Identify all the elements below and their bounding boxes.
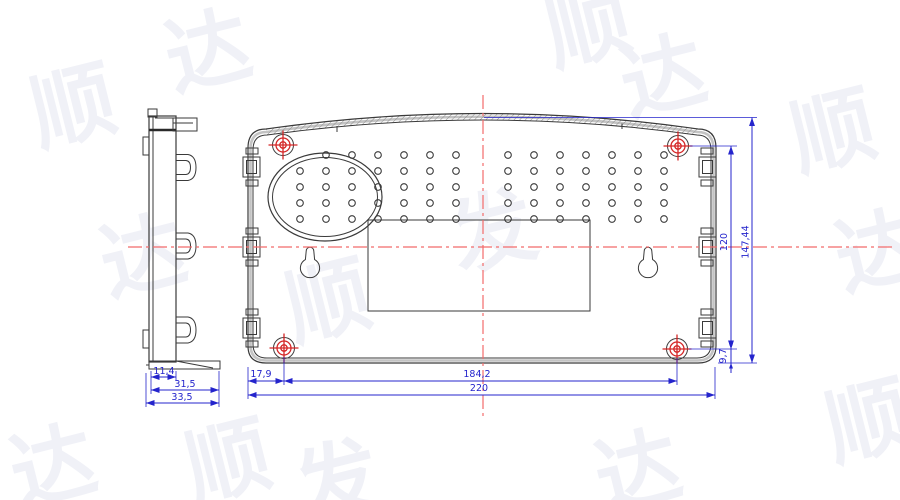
- vent-hole: [661, 216, 668, 223]
- screw-target-top-right: [664, 132, 693, 161]
- dim-total-height-label: 147,44: [741, 225, 752, 258]
- vent-hole: [401, 200, 408, 207]
- svg-text:顺: 顺: [175, 404, 280, 500]
- vent-hole: [453, 216, 460, 223]
- vent-hole: [349, 216, 356, 223]
- vent-hole: [635, 184, 642, 191]
- vent-hole: [583, 168, 590, 175]
- vent-hole: [427, 152, 434, 159]
- vent-hole: [297, 168, 304, 175]
- vent-hole: [427, 200, 434, 207]
- svg-text:顺: 顺: [275, 244, 380, 359]
- dim-total-depth-label: 33,5: [171, 392, 192, 403]
- vent-hole: [661, 200, 668, 207]
- vent-hole: [505, 168, 512, 175]
- vent-hole: [297, 184, 304, 191]
- side-tab-bottom: [143, 330, 149, 348]
- vent-hole: [375, 200, 382, 207]
- dim-total-width-label: 220: [470, 383, 488, 394]
- vent-hole: [323, 200, 330, 207]
- vent-hole: [297, 216, 304, 223]
- vent-hole: [505, 152, 512, 159]
- vent-hole: [323, 216, 330, 223]
- vent-hole: [349, 168, 356, 175]
- svg-text:顺: 顺: [20, 49, 125, 164]
- svg-text:发: 发: [440, 174, 545, 289]
- vent-hole: [401, 168, 408, 175]
- vent-hole: [661, 168, 668, 175]
- svg-text:达: 达: [90, 199, 195, 314]
- vent-hole: [557, 184, 564, 191]
- vent-hole: [505, 216, 512, 223]
- dim-flange-depth-label: 11,4: [153, 366, 174, 377]
- svg-text:达: 达: [585, 414, 690, 500]
- side-hook-top: [176, 155, 196, 181]
- vent-hole: [635, 168, 642, 175]
- vent-hole: [557, 200, 564, 207]
- vent-hole: [505, 200, 512, 207]
- vent-hole: [375, 152, 382, 159]
- svg-text:达: 达: [0, 409, 105, 500]
- vent-hole: [583, 200, 590, 207]
- vent-hole: [349, 184, 356, 191]
- watermark: 达 顺 达 顺 顺 达 发 顺 达 顺 发 达 顺 达: [0, 0, 900, 500]
- side-tab-top: [143, 137, 149, 155]
- vent-hole: [583, 152, 590, 159]
- dim-screw-span-horizontal-label: 184,2: [463, 369, 490, 380]
- svg-text:达: 达: [155, 0, 260, 110]
- vent-hole: [453, 184, 460, 191]
- vent-hole: [635, 152, 642, 159]
- svg-text:顺: 顺: [780, 74, 885, 189]
- dim-body-depth-label: 31,5: [174, 379, 195, 390]
- vent-hole: [375, 168, 382, 175]
- vent-hole: [349, 200, 356, 207]
- vent-hole: [453, 168, 460, 175]
- vent-hole: [661, 184, 668, 191]
- vent-hole: [427, 216, 434, 223]
- vent-hole: [427, 184, 434, 191]
- vent-hole: [401, 216, 408, 223]
- vent-hole: [505, 184, 512, 191]
- vent-hole: [661, 152, 668, 159]
- vent-hole: [427, 168, 434, 175]
- vent-hole: [609, 200, 616, 207]
- vent-hole: [609, 152, 616, 159]
- vent-hole: [557, 216, 564, 223]
- dim-screw-bottom-offset-label: 9,7: [718, 348, 729, 363]
- vent-hole: [453, 200, 460, 207]
- vent-hole: [583, 216, 590, 223]
- vent-hole: [635, 216, 642, 223]
- drawing-canvas: 达 顺 达 顺 顺 达 发 顺 达 顺 发 达 顺 达: [0, 0, 900, 500]
- vent-hole: [401, 184, 408, 191]
- vent-hole: [609, 184, 616, 191]
- vent-hole: [609, 216, 616, 223]
- vent-hole: [531, 184, 538, 191]
- vent-hole: [583, 184, 590, 191]
- vent-hole: [401, 152, 408, 159]
- vent-hole: [323, 184, 330, 191]
- svg-text:达: 达: [825, 194, 900, 309]
- vent-hole: [635, 200, 642, 207]
- side-hook-bottom: [176, 317, 196, 343]
- dimensions-side-view: 11,4 31,5 33,5: [146, 366, 219, 407]
- keyhole-slot-right: [638, 247, 657, 277]
- screw-target-top-left: [269, 131, 298, 160]
- vent-hole: [297, 200, 304, 207]
- vent-hole: [453, 152, 460, 159]
- vent-hole: [531, 168, 538, 175]
- vent-hole: [323, 168, 330, 175]
- side-top-bracket: [173, 118, 197, 131]
- vent-hole: [531, 200, 538, 207]
- dim-screw-left-offset-label: 17,9: [250, 369, 271, 380]
- vent-hole: [557, 168, 564, 175]
- dim-screw-span-vertical-label: 120: [719, 233, 730, 251]
- svg-text:发: 发: [285, 424, 390, 500]
- vent-hole: [609, 168, 616, 175]
- vent-hole: [531, 216, 538, 223]
- vent-hole: [557, 152, 564, 159]
- speaker-grille: [268, 153, 382, 241]
- svg-text:顺: 顺: [815, 364, 900, 479]
- vent-hole: [531, 152, 538, 159]
